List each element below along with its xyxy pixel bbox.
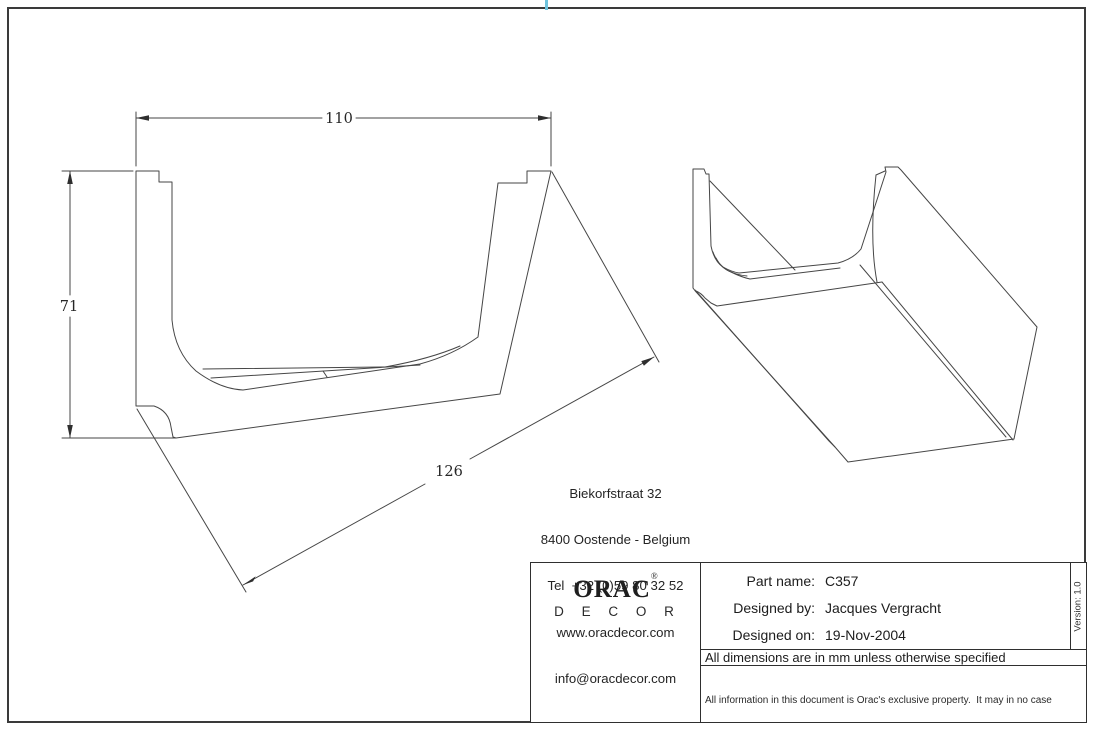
front-inner-ghost-line — [211, 365, 420, 378]
field-part-name: Part name: C357 — [701, 568, 1086, 595]
part-info-fields: Part name: C357 Designed by: Jacques Ver… — [701, 563, 1086, 649]
company-address: Biekorfstraat 32 8400 Oostende - Belgium… — [532, 455, 700, 717]
extension-line — [552, 172, 659, 362]
dimension-height-71: 71 — [60, 171, 176, 438]
arrowhead-lower-left — [243, 576, 256, 585]
front-profile-outline — [136, 171, 551, 438]
dim-71-label: 71 — [60, 299, 78, 315]
title-block-company-cell: ORAC® D E C O R Biekorfstraat 32 8400 Oo… — [531, 563, 701, 722]
arrowhead-upper-right — [641, 357, 654, 366]
address-line: 8400 Oostende - Belgium — [532, 532, 700, 547]
field-label: Part name: — [701, 568, 815, 595]
perspective-foot-edge — [695, 290, 835, 447]
address-line: Tel +32 (0)59 80 32 52 — [532, 578, 700, 593]
field-value: 19-Nov-2004 — [825, 622, 906, 649]
address-line: Biekorfstraat 32 — [532, 486, 700, 501]
address-line-website: www.oracdecor.com — [532, 625, 700, 640]
legal-line: All information in this document is Orac… — [705, 694, 1086, 707]
dim-110-label: 110 — [325, 111, 353, 127]
perspective-outline — [693, 167, 1037, 462]
field-designed-on: Designed on: 19-Nov-2004 — [701, 622, 1086, 649]
dimensions-note: All dimensions are in mm unless otherwis… — [701, 649, 1086, 665]
perspective-bottom-right-edge — [882, 282, 1013, 440]
legal-disclaimer: All information in this document is Orac… — [701, 665, 1086, 733]
perspective-front-bottom-edge — [696, 282, 882, 306]
title-block: ORAC® D E C O R Biekorfstraat 32 8400 Oo… — [530, 562, 1087, 723]
extension-line — [137, 409, 246, 592]
perspective-view — [693, 167, 1037, 462]
version-label: Version: 1.0 — [1073, 565, 1084, 649]
dim-126-label: 126 — [435, 464, 463, 480]
field-designed-by: Designed by: Jacques Vergracht — [701, 595, 1086, 622]
perspective-inner-bottom-right-edge — [860, 265, 1006, 437]
perspective-right-wall-top-edge — [876, 171, 885, 175]
title-block-info-cell: Part name: C357 Designed by: Jacques Ver… — [701, 563, 1086, 722]
field-value: Jacques Vergracht — [825, 595, 941, 622]
field-label: Designed by: — [701, 595, 815, 622]
address-line-email: info@oracdecor.com — [532, 671, 700, 686]
arrowhead-left — [136, 115, 149, 121]
field-label: Designed on: — [701, 622, 815, 649]
arrowhead-top — [67, 171, 73, 184]
front-inner-tick — [323, 371, 327, 377]
arrowhead-bottom — [67, 425, 73, 438]
perspective-inner-left-top-edge — [710, 181, 795, 270]
dimension-width-110: 110 — [136, 111, 551, 166]
arrowhead-right — [538, 115, 551, 121]
field-value: C357 — [825, 568, 858, 595]
front-inner-ghost-line — [203, 346, 460, 369]
drawing-sheet: 110 71 126 ORAC® D E C O R — [0, 0, 1093, 733]
front-view — [136, 171, 551, 438]
perspective-right-wall-edge — [873, 175, 877, 282]
version-cell: Version: 1.0 — [1070, 563, 1086, 649]
